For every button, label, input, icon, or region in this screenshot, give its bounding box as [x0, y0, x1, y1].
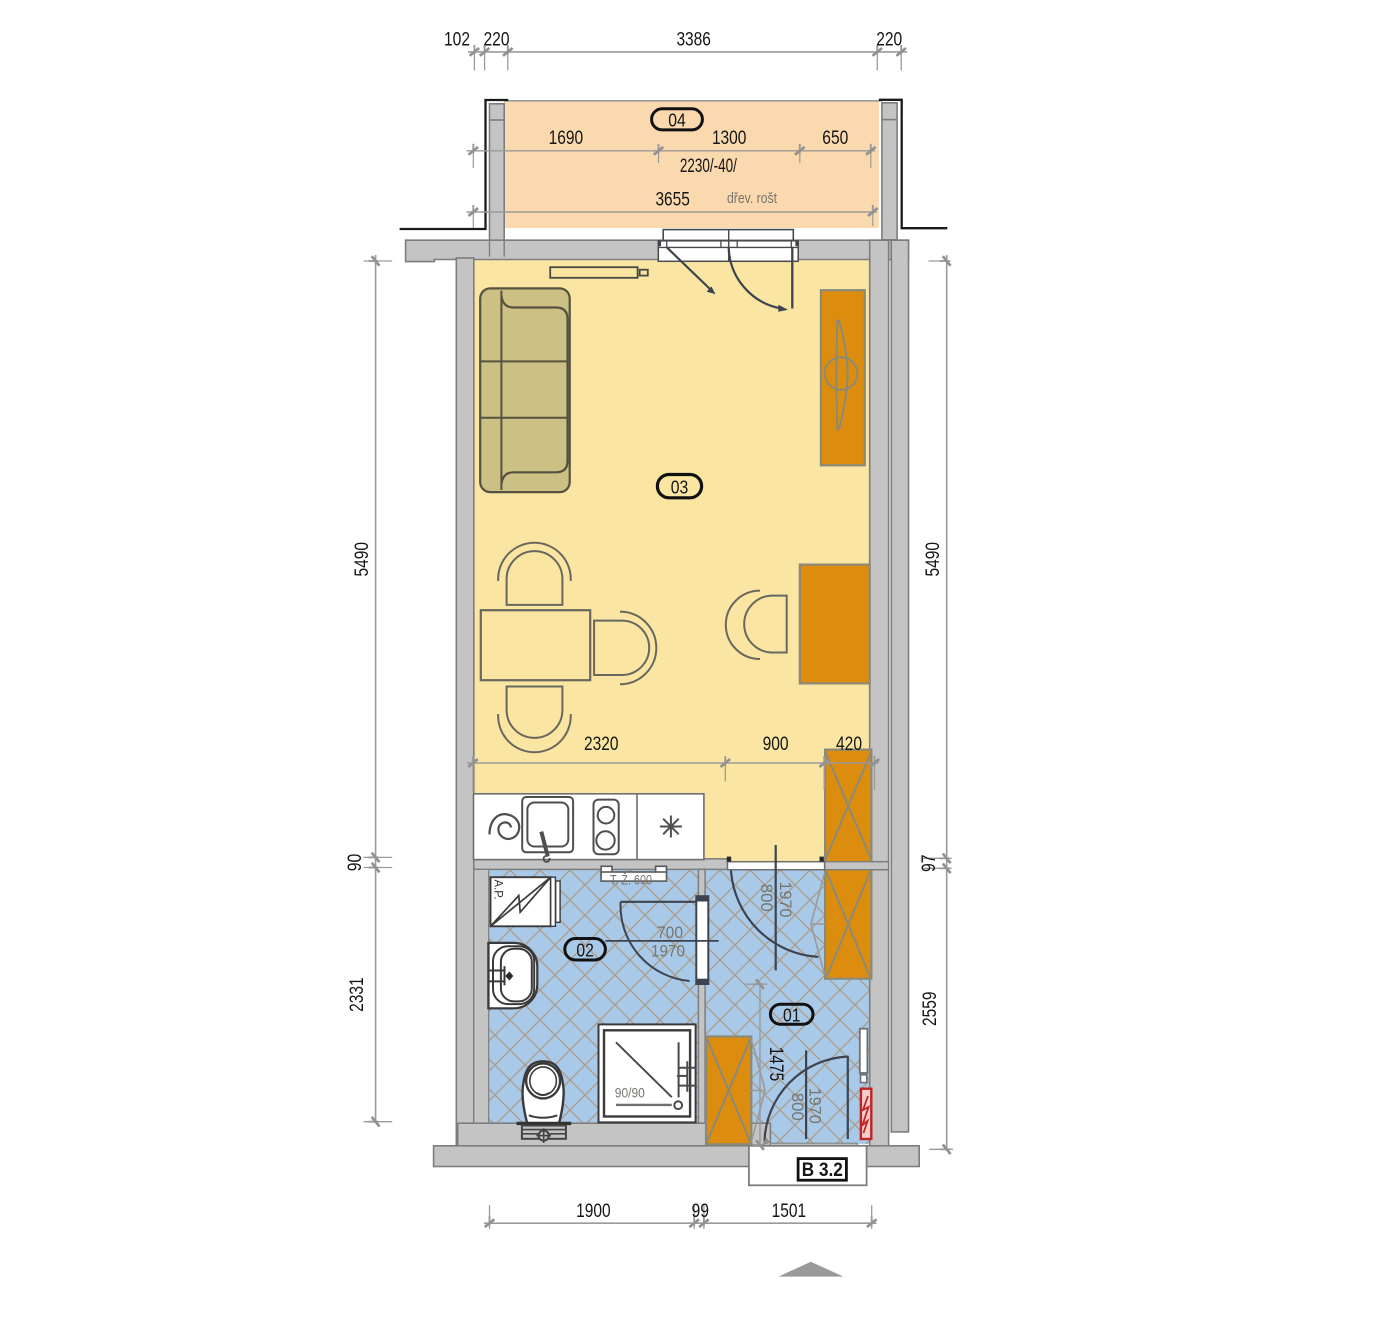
svg-text:5490: 5490 — [923, 542, 944, 577]
svg-text:B 3.2: B 3.2 — [802, 1160, 843, 1181]
svg-text:220: 220 — [484, 30, 510, 51]
svg-text:700: 700 — [657, 923, 683, 942]
svg-text:420: 420 — [836, 734, 862, 755]
svg-text:97: 97 — [919, 855, 940, 873]
svg-text:1970: 1970 — [776, 882, 795, 918]
svg-text:220: 220 — [876, 30, 902, 51]
svg-text:90/90: 90/90 — [615, 1086, 645, 1101]
svg-text:2320: 2320 — [584, 734, 619, 755]
svg-text:3655: 3655 — [655, 190, 690, 211]
svg-text:2559: 2559 — [920, 992, 941, 1027]
svg-text:dřev. rošt: dřev. rošt — [727, 191, 777, 207]
svg-text:2230/-40/: 2230/-40/ — [680, 156, 738, 177]
svg-text:1970: 1970 — [651, 942, 685, 961]
svg-text:800: 800 — [788, 1093, 807, 1121]
svg-text:2331: 2331 — [347, 977, 368, 1012]
svg-text:03: 03 — [671, 477, 689, 498]
svg-text:A.P.: A.P. — [492, 880, 504, 900]
svg-text:1900: 1900 — [576, 1201, 611, 1222]
svg-text:1970: 1970 — [806, 1088, 825, 1124]
svg-text:04: 04 — [668, 109, 686, 130]
svg-text:1300: 1300 — [712, 128, 747, 149]
svg-text:99: 99 — [692, 1201, 710, 1222]
svg-text:02: 02 — [576, 939, 594, 960]
svg-text:1690: 1690 — [549, 128, 584, 149]
svg-text:102: 102 — [444, 30, 470, 51]
svg-text:T. Ž. 600: T. Ž. 600 — [610, 872, 652, 888]
svg-text:1501: 1501 — [772, 1201, 807, 1222]
svg-text:5490: 5490 — [352, 542, 373, 577]
svg-text:3386: 3386 — [676, 30, 711, 51]
svg-text:650: 650 — [822, 128, 848, 149]
svg-text:1475: 1475 — [765, 1047, 786, 1082]
svg-text:01: 01 — [783, 1004, 801, 1025]
svg-text:90: 90 — [345, 854, 366, 872]
svg-text:900: 900 — [763, 734, 789, 755]
svg-text:800: 800 — [757, 884, 776, 912]
